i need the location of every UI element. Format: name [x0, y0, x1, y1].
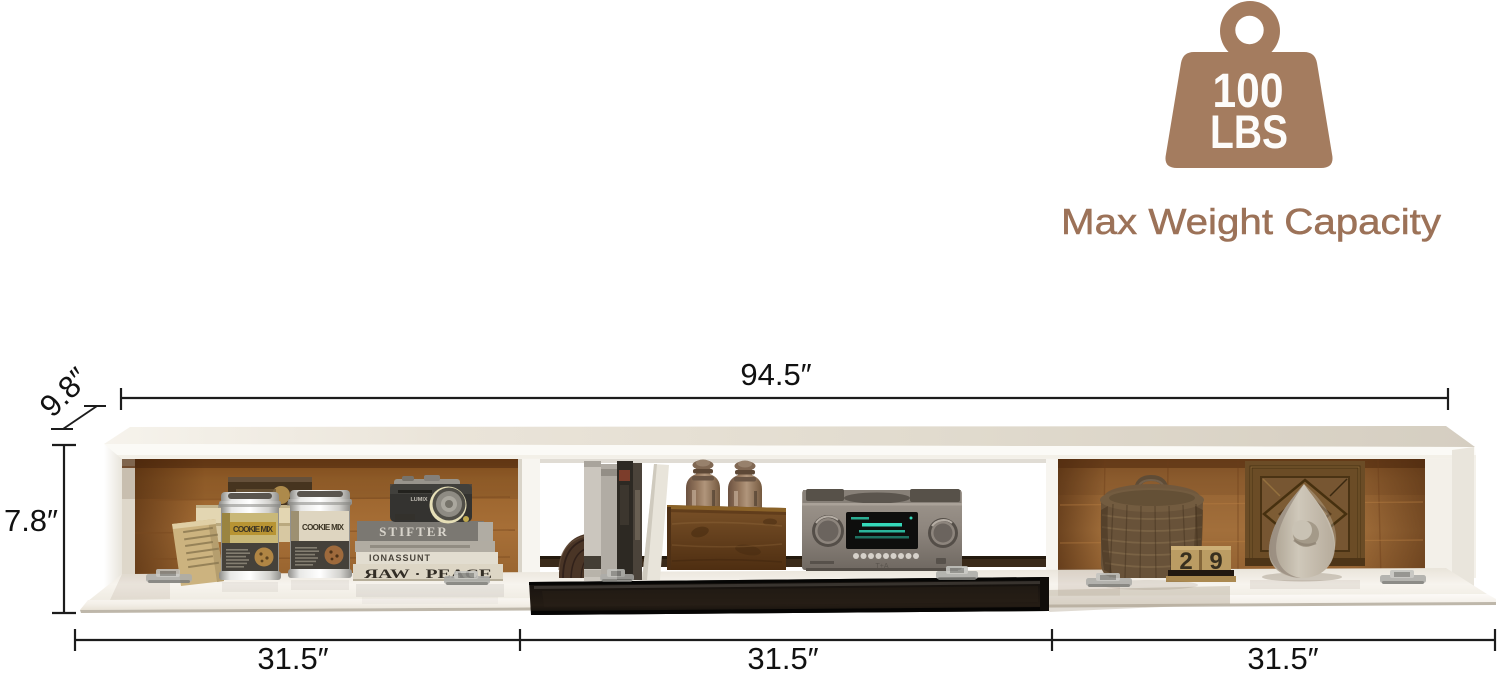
svg-text:COOKIE MIX: COOKIE MIX — [302, 523, 345, 532]
svg-text:31.5″: 31.5″ — [747, 641, 818, 673]
svg-text:COOKIE MIX: COOKIE MIX — [233, 525, 274, 534]
svg-text:IONASSUNT: IONASSUNT — [369, 553, 431, 563]
svg-text:94.5″: 94.5″ — [740, 357, 811, 392]
svg-text:31.5″: 31.5″ — [1247, 641, 1318, 673]
svg-text:Max Weight Capacity: Max Weight Capacity — [1061, 201, 1441, 242]
svg-text:7.8″: 7.8″ — [4, 503, 58, 538]
svg-text:STIFTER: STIFTER — [379, 524, 449, 539]
svg-text:LBS: LBS — [1210, 105, 1288, 158]
svg-text:31.5″: 31.5″ — [257, 641, 328, 673]
svg-text:LUMIX: LUMIX — [410, 497, 427, 503]
